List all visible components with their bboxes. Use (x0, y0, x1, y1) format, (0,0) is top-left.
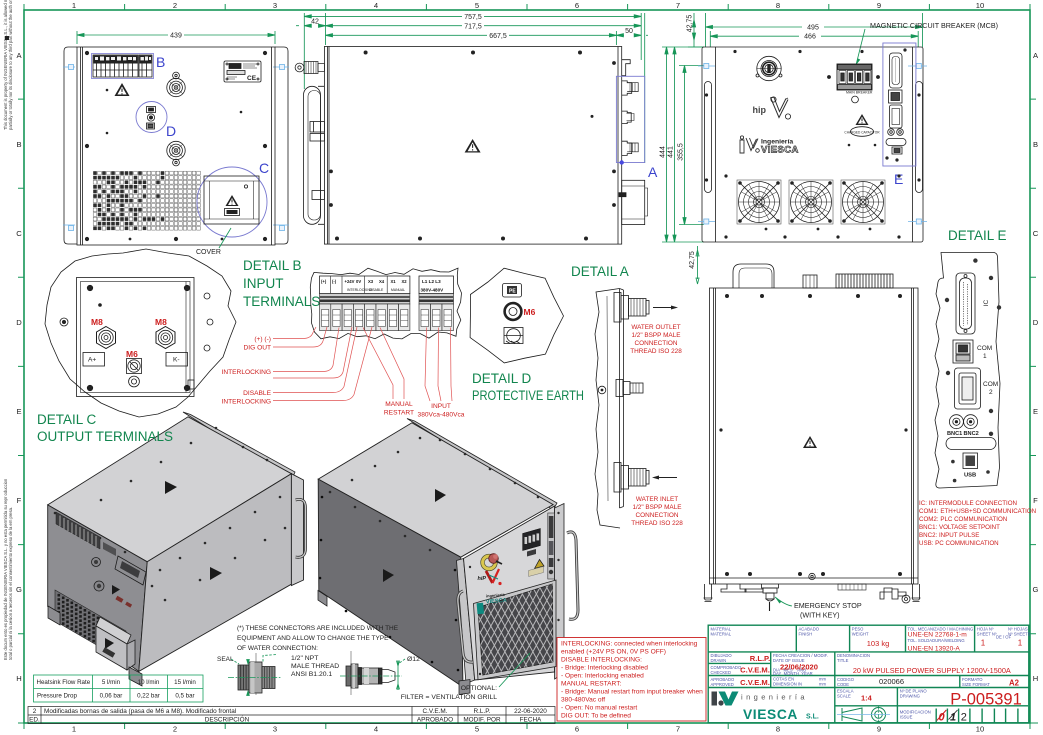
svg-text:2: 2 (173, 725, 177, 734)
svg-text:355,5: 355,5 (678, 143, 685, 161)
svg-text:hip: hip (753, 105, 767, 115)
svg-text:667,5: 667,5 (489, 33, 507, 40)
svg-text:757,5: 757,5 (464, 14, 482, 21)
svg-text:6: 6 (575, 1, 579, 10)
svg-text:CE: CE (247, 75, 257, 82)
svg-text:DESCRIPCIÓN: DESCRIPCIÓN (205, 715, 250, 724)
svg-text:C: C (259, 160, 269, 176)
svg-text:5: 5 (475, 1, 479, 10)
svg-text:X3: X3 (368, 279, 374, 284)
svg-text:495: 495 (807, 25, 819, 32)
svg-text:1: 1 (983, 353, 987, 360)
svg-text:DETAIL A: DETAIL A (571, 264, 629, 279)
svg-text:1/2" BSPP MALE: 1/2" BSPP MALE (632, 504, 681, 511)
svg-text:FECHA: FECHA (520, 717, 542, 724)
svg-text:CHECKED: CHECKED (711, 670, 731, 675)
svg-text:TERMINALS: TERMINALS (243, 294, 320, 309)
svg-text:IC: INTERMODULE CONNECTION: IC: INTERMODULE CONNECTION (919, 500, 1017, 507)
svg-text:10: 10 (976, 1, 984, 10)
svg-text:INPUT: INPUT (243, 276, 284, 291)
svg-text:F: F (1033, 496, 1038, 505)
svg-text:8: 8 (776, 1, 780, 10)
svg-text:DRAWING: DRAWING (900, 694, 920, 699)
svg-text:X2: X2 (402, 279, 408, 284)
svg-text:R.L.P.: R.L.P. (750, 654, 771, 663)
svg-text:PE: PE (509, 289, 516, 295)
svg-text:22-06-2020: 22-06-2020 (514, 708, 547, 715)
svg-text:DAY MONTH YEAR: DAY MONTH YEAR (773, 671, 813, 676)
svg-text:DETAIL D: DETAIL D (472, 371, 532, 386)
svg-text:UNE-EN 22768-1-m: UNE-EN 22768-1-m (908, 632, 968, 639)
svg-text:INTERLOCKING: INTERLOCKING (222, 399, 271, 406)
svg-text:DETAIL E: DETAIL E (948, 228, 1007, 243)
svg-text:A+: A+ (88, 357, 96, 364)
svg-text:M8: M8 (91, 317, 103, 327)
svg-text:USB: USB (964, 473, 976, 479)
svg-text:CHARGED CAPACITOR: CHARGED CAPACITOR (844, 130, 880, 134)
svg-text:D: D (16, 318, 22, 327)
svg-text:INPUT: INPUT (431, 403, 451, 410)
svg-text:- Bridge: Interlocking disable: - Bridge: Interlocking disabled (561, 665, 648, 672)
svg-text:B: B (156, 54, 165, 70)
svg-text:42,75: 42,75 (687, 15, 694, 33)
svg-text:MODIF. POR: MODIF. POR (463, 717, 501, 724)
svg-text:4: 4 (374, 725, 378, 734)
svg-text:MANUAL RESTART:: MANUAL RESTART: (561, 681, 621, 688)
svg-text:717,5: 717,5 (464, 23, 482, 30)
svg-text:42: 42 (311, 18, 319, 25)
svg-text:DIMENSION IN: DIMENSION IN (773, 682, 802, 687)
svg-text:L1 L2 L3: L1 L2 L3 (422, 279, 441, 284)
svg-text:USB: PC COMMUNICATION: USB: PC COMMUNICATION (919, 540, 999, 547)
svg-text:COVER: COVER (196, 249, 221, 256)
svg-text:E: E (16, 407, 21, 416)
svg-text:441: 441 (668, 146, 675, 158)
svg-text:10: 10 (976, 725, 984, 734)
svg-text:Modificadas bornas de salida (: Modificadas bornas de salida (pasa de M6… (44, 708, 236, 715)
svg-text:2: 2 (173, 1, 177, 10)
svg-text:4: 4 (374, 1, 378, 10)
svg-text:DRAWN: DRAWN (711, 658, 727, 663)
svg-text:- Open: Interlocking enabled: - Open: Interlocking enabled (561, 673, 644, 680)
svg-text:7: 7 (676, 725, 680, 734)
svg-text:1: 1 (981, 639, 986, 648)
svg-text:22/06/2020: 22/06/2020 (780, 662, 818, 671)
svg-text:M6: M6 (524, 307, 536, 317)
svg-text:OPTIONAL:: OPTIONAL: (461, 685, 497, 692)
svg-text:380-480Vac off: 380-480Vac off (561, 697, 605, 704)
svg-text:439: 439 (170, 33, 182, 40)
svg-text:50: 50 (625, 28, 633, 35)
svg-text:M8: M8 (155, 317, 167, 327)
svg-text:B: B (1033, 140, 1038, 149)
svg-text:THREAD ISO 228: THREAD ISO 228 (631, 520, 683, 527)
svg-text:M6: M6 (126, 349, 138, 359)
svg-text:X1: X1 (391, 279, 397, 284)
svg-text:2: 2 (961, 712, 967, 724)
svg-text:DISABLE: DISABLE (243, 390, 271, 397)
svg-text:5 l/min: 5 l/min (102, 679, 121, 686)
svg-text:(+): (+) (321, 279, 327, 284)
svg-text:H: H (1033, 674, 1038, 683)
svg-text:SIZE FORMAT: SIZE FORMAT (962, 682, 990, 687)
svg-text:1/2" NPT: 1/2" NPT (291, 655, 318, 662)
svg-text:2: 2 (33, 708, 37, 715)
svg-text:VIESCA: VIESCA (743, 707, 798, 722)
svg-text:0,06 bar: 0,06 bar (100, 693, 123, 700)
svg-text:BNC1: VOLTAGE SETPOINT: BNC1: VOLTAGE SETPOINT (919, 524, 1000, 531)
svg-text:(-): (-) (332, 279, 337, 284)
svg-text:42,75: 42,75 (689, 251, 696, 269)
svg-text:A2: A2 (1009, 679, 1020, 688)
svg-text:E: E (894, 171, 903, 187)
svg-text:1: 1 (1018, 639, 1023, 648)
svg-text:6: 6 (575, 725, 579, 734)
svg-text:C.V.E.M.: C.V.E.M. (423, 708, 448, 715)
svg-text:WATER INLET: WATER INLET (636, 496, 678, 503)
svg-text:BNC1: BNC1 (947, 431, 962, 437)
svg-text:COM1: ETH+USB+SD COMMUNICATION: COM1: ETH+USB+SD COMMUNICATION (919, 508, 1036, 515)
svg-text:BNC2: BNC2 (964, 431, 979, 437)
svg-text:BNC2: INPUT PULSE: BNC2: INPUT PULSE (919, 532, 979, 539)
svg-text:9: 9 (877, 725, 881, 734)
svg-text:SCALE: SCALE (837, 694, 851, 699)
svg-text:enabled (+24V PS ON, 0V PS OFF: enabled (+24V PS ON, 0V PS OFF) (561, 649, 666, 656)
svg-text:444: 444 (660, 146, 667, 158)
svg-text:WEIGHT: WEIGHT (852, 632, 869, 637)
svg-text:total o parcial ni la cesion a: total o parcial ni la cesion a terceros … (8, 507, 13, 660)
svg-text:MALE THREAD: MALE THREAD (291, 663, 339, 670)
svg-text:DIG OUT: To be defined: DIG OUT: To be defined (561, 713, 631, 720)
svg-text:380Vca-480Vca: 380Vca-480Vca (418, 412, 465, 419)
svg-text:MAIN BREAKER: MAIN BREAKER (846, 91, 873, 95)
svg-text:MANUAL: MANUAL (385, 401, 413, 408)
svg-text:ANSI B1.20.1: ANSI B1.20.1 (291, 671, 332, 678)
svg-text:DISABLE: DISABLE (369, 288, 384, 292)
svg-text:1: 1 (72, 1, 76, 10)
svg-text:8: 8 (776, 725, 780, 734)
svg-text:X4: X4 (379, 279, 385, 284)
svg-text:0,22 bar: 0,22 bar (137, 693, 160, 700)
svg-text:0V: 0V (356, 279, 361, 284)
svg-text:1: 1 (72, 725, 76, 734)
svg-text:SHEET Nº: SHEET Nº (977, 632, 997, 637)
svg-text:D: D (1033, 318, 1039, 327)
svg-text:(*) THESE CONNECTORS ARE INCLU: (*) THESE CONNECTORS ARE INCLUDED WITH T… (237, 625, 399, 632)
svg-text:RESTART: RESTART (384, 410, 414, 417)
svg-text:THREAD ISO 228: THREAD ISO 228 (630, 348, 682, 355)
svg-text:G: G (1033, 585, 1039, 594)
svg-text:hiP: hiP (478, 576, 487, 582)
svg-text:5: 5 (475, 725, 479, 734)
svg-text:C: C (1033, 229, 1039, 238)
svg-text:EMERGENCY STOP: EMERGENCY STOP (794, 601, 862, 610)
svg-text:MANUAL: MANUAL (391, 288, 405, 292)
svg-text:IC: IC (983, 299, 990, 306)
svg-text:15 l/min: 15 l/min (174, 679, 196, 686)
svg-text:Pressure Drop: Pressure Drop (37, 693, 77, 700)
svg-text:20 kW PULSED POWER SUPPLY 1200: 20 kW PULSED POWER SUPPLY 1200V-1500A (853, 666, 1011, 675)
svg-text:C.V.E.M.: C.V.E.M. (740, 666, 770, 675)
svg-text:A: A (648, 164, 658, 180)
svg-text:D: D (166, 123, 176, 139)
svg-text:Nº SHEETS: Nº SHEETS (1008, 632, 1031, 637)
svg-text:Heatsink Flow Rate: Heatsink Flow Rate (37, 679, 91, 686)
svg-text:WATER OUTLET: WATER OUTLET (631, 324, 680, 331)
svg-text:mm: mm (819, 682, 826, 687)
svg-text:3: 3 (273, 1, 277, 10)
svg-text:C.V.E.M.: C.V.E.M. (740, 678, 770, 687)
svg-text:7: 7 (676, 1, 680, 10)
svg-text:2: 2 (989, 389, 993, 396)
svg-text:FILTER = VENTILATION GRILL: FILTER = VENTILATION GRILL (401, 694, 497, 701)
svg-text:+24V: +24V (345, 279, 355, 284)
svg-text:CODE: CODE (837, 682, 849, 687)
svg-text:K-: K- (173, 357, 180, 364)
svg-text:ingeniería: ingeniería (741, 693, 808, 702)
svg-text:020066: 020066 (879, 677, 904, 686)
svg-text:INTERLOCKING: connected when i: INTERLOCKING: connected when interlockin… (561, 641, 698, 648)
svg-text:B: B (16, 140, 21, 149)
svg-text:ISSUE: ISSUE (900, 715, 913, 720)
svg-text:COM: COM (983, 381, 998, 388)
svg-text:F: F (17, 496, 22, 505)
svg-text:PROTECTIVE EARTH: PROTECTIVE EARTH (472, 388, 584, 403)
svg-text:APPROVED: APPROVED (711, 682, 734, 687)
svg-text:C: C (16, 229, 22, 238)
svg-text:- Bridge: Manual restart from: - Bridge: Manual restart from input brea… (561, 689, 703, 696)
svg-text:TOL. SOLDADURA/WELDING: TOL. SOLDADURA/WELDING (908, 638, 965, 643)
svg-text:H: H (16, 674, 21, 683)
svg-text:VIESCA: VIESCA (761, 145, 799, 156)
svg-text:APROBADO: APROBADO (417, 717, 453, 724)
svg-text:S.L.: S.L. (806, 714, 819, 721)
svg-text:DE / OF: DE / OF (996, 635, 1012, 640)
svg-text:3: 3 (273, 725, 277, 734)
svg-text:ED.: ED. (29, 717, 40, 724)
svg-text:P-005391: P-005391 (950, 691, 1022, 709)
svg-text:OUTPUT TERMINALS: OUTPUT TERMINALS (37, 429, 173, 444)
svg-text:10 l/min: 10 l/min (138, 679, 160, 686)
svg-text:DETAIL C: DETAIL C (37, 412, 97, 427)
svg-text:CONNECTION: CONNECTION (635, 340, 678, 347)
svg-text:DISABLE INTERLOCKING:: DISABLE INTERLOCKING: (561, 657, 642, 664)
svg-text:partially or totally nor its d: partially or totally nor its disclosure … (8, 0, 13, 130)
svg-text:466: 466 (804, 34, 816, 41)
svg-text:INTERLOCKING: INTERLOCKING (222, 369, 271, 376)
svg-text:Ø12: Ø12 (407, 656, 420, 663)
svg-text:DIG OUT: DIG OUT (244, 345, 271, 352)
svg-text:380V-480V: 380V-480V (421, 288, 445, 293)
svg-text:COM: COM (977, 345, 992, 352)
svg-text:1:4: 1:4 (861, 694, 873, 703)
svg-text:TITLE: TITLE (837, 658, 849, 663)
svg-text:0,5 bar: 0,5 bar (175, 693, 194, 700)
svg-text:9: 9 (877, 1, 881, 10)
svg-text:R.L.P.: R.L.P. (474, 708, 491, 715)
svg-text:MAGNETIC CIRCUIT BREAKER (MCB): MAGNETIC CIRCUIT BREAKER (MCB) (870, 21, 998, 30)
svg-text:CONNECTION: CONNECTION (636, 512, 679, 519)
svg-text:1/2" BSPP MALE: 1/2" BSPP MALE (631, 332, 680, 339)
svg-text:EQUIPMENT AND ALLOW TO CHANGE: EQUIPMENT AND ALLOW TO CHANGE THE TYPE (237, 635, 389, 642)
svg-text:DETAIL B: DETAIL B (243, 258, 302, 273)
svg-text:UNE-EN 13920-A: UNE-EN 13920-A (908, 646, 961, 653)
svg-text:- Open: No manual restart: - Open: No manual restart (561, 705, 637, 712)
svg-text:E: E (1033, 407, 1038, 416)
svg-text:COM2: PLC COMMUNICATION: COM2: PLC COMMUNICATION (919, 516, 1007, 523)
svg-text:FINISH: FINISH (799, 632, 813, 637)
svg-text:MATERIAL: MATERIAL (711, 632, 732, 637)
svg-text:OF WATER CONNECTION:: OF WATER CONNECTION: (237, 645, 318, 652)
svg-text:G: G (16, 585, 22, 594)
svg-text:(+) (-): (+) (-) (254, 336, 271, 343)
svg-text:(WITH KEY): (WITH KEY) (800, 611, 840, 620)
svg-text:103 kg: 103 kg (867, 639, 890, 648)
